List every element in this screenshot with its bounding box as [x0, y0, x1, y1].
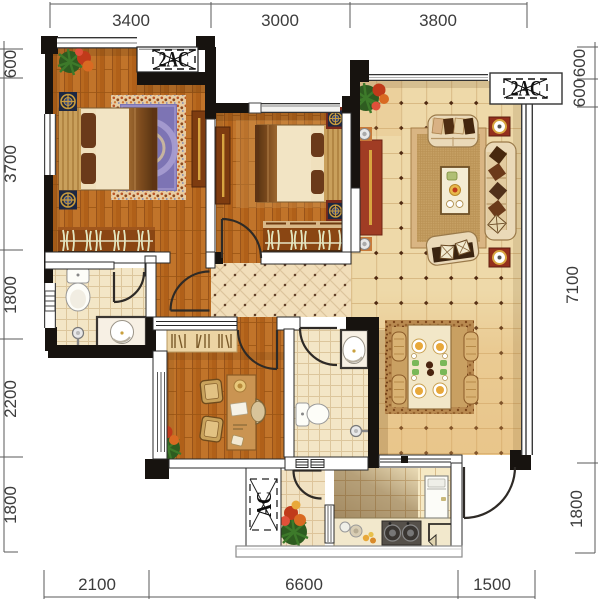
- svg-text:6600: 6600: [285, 575, 323, 594]
- svg-text:AC: AC: [254, 491, 277, 517]
- svg-text:1500: 1500: [473, 575, 511, 594]
- svg-text:3000: 3000: [261, 11, 299, 30]
- svg-text:2AC: 2AC: [159, 48, 190, 72]
- svg-text:1800: 1800: [567, 490, 586, 528]
- svg-text:1800: 1800: [1, 486, 20, 524]
- svg-text:3800: 3800: [419, 11, 457, 30]
- svg-text:600: 600: [1, 50, 20, 78]
- svg-text:2200: 2200: [1, 380, 20, 418]
- svg-text:2100: 2100: [78, 575, 116, 594]
- svg-text:3400: 3400: [112, 11, 150, 30]
- svg-text:2AC: 2AC: [511, 77, 542, 101]
- svg-text:1800: 1800: [1, 276, 20, 314]
- svg-text:600: 600: [570, 79, 589, 107]
- svg-text:7100: 7100: [563, 266, 582, 304]
- svg-text:3700: 3700: [1, 145, 20, 183]
- svg-text:600: 600: [570, 49, 589, 77]
